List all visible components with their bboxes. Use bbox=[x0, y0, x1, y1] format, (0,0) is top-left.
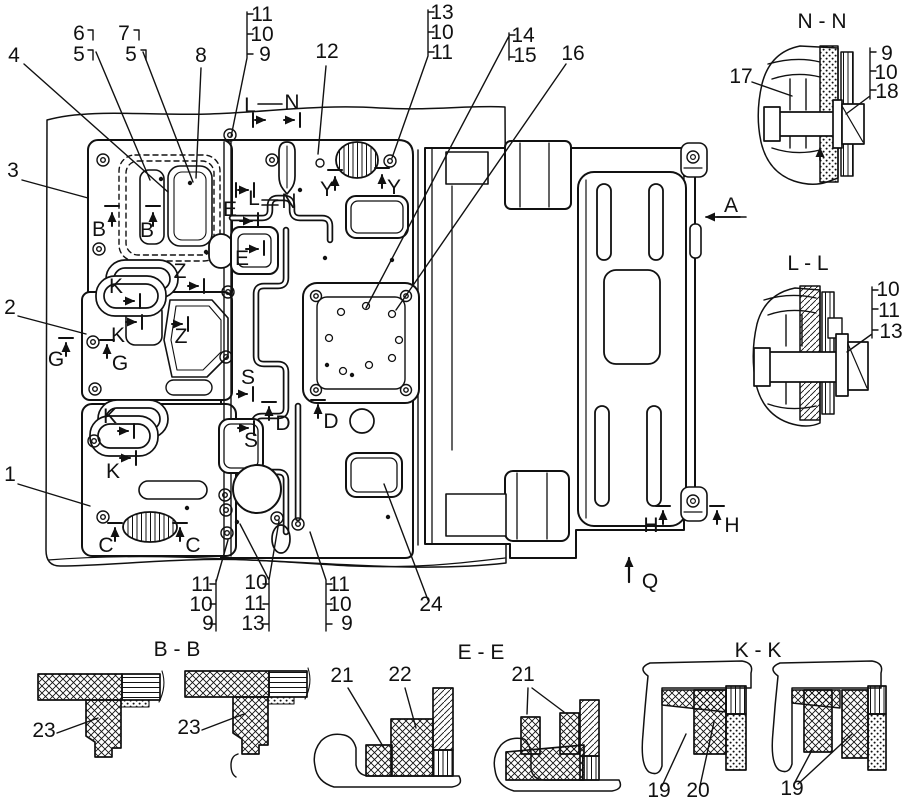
callout-13-bm: 13 bbox=[241, 612, 264, 635]
opening-top-right bbox=[346, 196, 408, 238]
callout-18: 18 bbox=[875, 80, 898, 103]
view-letter-c2: C bbox=[185, 534, 200, 557]
section-title-bb: B - B bbox=[154, 638, 201, 661]
view-letter-z2: Z bbox=[175, 325, 188, 348]
panel-slot bbox=[649, 184, 663, 260]
section-view-ee bbox=[314, 688, 620, 791]
callout-12: 12 bbox=[315, 40, 338, 63]
callout-9-bl: 9 bbox=[202, 612, 214, 635]
body-boss-bottom bbox=[505, 471, 569, 541]
callout-5b: 5 bbox=[125, 43, 137, 66]
panel-slot bbox=[595, 406, 609, 506]
callout-23b: 23 bbox=[177, 716, 200, 739]
big-port bbox=[233, 465, 281, 513]
hatched-port bbox=[123, 512, 177, 542]
view-letter-z1: Z bbox=[174, 260, 187, 283]
view-letter-d1: D bbox=[275, 412, 290, 435]
panel-slot bbox=[647, 406, 661, 506]
callout-17: 17 bbox=[729, 65, 752, 88]
view-letter-d2: D bbox=[323, 410, 338, 433]
view-letter-l2: L bbox=[248, 187, 260, 210]
view-letter-h1: H bbox=[643, 514, 658, 537]
view-letter-n2: N bbox=[281, 190, 296, 213]
view-letter-k4: K bbox=[106, 460, 120, 483]
callout-5a: 5 bbox=[73, 43, 85, 66]
view-letter-s2: S bbox=[244, 429, 258, 452]
callout-9-top: 9 bbox=[259, 43, 271, 66]
view-letter-e1: E bbox=[223, 198, 237, 221]
view-letter-q: Q bbox=[642, 570, 658, 593]
view-letter-y2: Y bbox=[387, 176, 401, 199]
kk-profile-left bbox=[642, 661, 751, 774]
panel-slot bbox=[604, 270, 660, 364]
view-letter-k3: K bbox=[103, 405, 117, 428]
section-title-nn: N - N bbox=[798, 10, 847, 33]
view-letter-k2: K bbox=[111, 324, 125, 347]
callout-10-ll: 10 bbox=[876, 278, 899, 301]
callout-19b: 19 bbox=[780, 777, 803, 800]
view-letter-a: A bbox=[724, 194, 738, 217]
bb-profile-left bbox=[38, 671, 164, 757]
callout-20: 20 bbox=[686, 779, 709, 802]
callout-22: 22 bbox=[388, 663, 411, 686]
callout-11-top2: 11 bbox=[431, 41, 453, 64]
parts-diagram: 4657581110912131011141516321179101810111… bbox=[0, 0, 905, 809]
section-title-ee: E - E bbox=[458, 641, 505, 664]
side-tab bbox=[690, 224, 701, 258]
view-letter-y1: Y bbox=[320, 178, 334, 201]
callout-23a: 23 bbox=[32, 719, 55, 742]
lift-ear-bottom bbox=[681, 487, 707, 521]
callout-15: 15 bbox=[513, 44, 536, 67]
view-letter-c1: C bbox=[98, 534, 113, 557]
section-view-kk bbox=[642, 661, 886, 774]
section-view-nn bbox=[758, 46, 864, 184]
view-letter-h2: H bbox=[724, 514, 739, 537]
callout-21b: 21 bbox=[511, 663, 534, 686]
section-title-ll: L - L bbox=[787, 252, 828, 275]
ee-profile-left bbox=[314, 688, 460, 787]
view-letter-n1: N bbox=[284, 91, 299, 114]
view-letter-e2: E bbox=[235, 247, 249, 270]
view-letter-b1: B bbox=[92, 218, 106, 241]
body-boss-top bbox=[505, 141, 571, 209]
view-letter-b2: B bbox=[140, 219, 154, 242]
engine-body bbox=[425, 141, 707, 558]
callout-11-ll: 11 bbox=[878, 299, 900, 322]
callout-13-ll: 13 bbox=[879, 320, 902, 343]
callout-7: 7 bbox=[118, 22, 130, 45]
lift-ear-top bbox=[681, 143, 707, 177]
view-letter-k1: K bbox=[109, 275, 123, 298]
callout-16: 16 bbox=[561, 42, 584, 65]
view-letter-g1: G bbox=[48, 348, 64, 371]
callout-4: 4 bbox=[8, 44, 20, 67]
diagram-canvas: 4657581110912131011141516321179101810111… bbox=[0, 0, 905, 809]
view-letter-g2: G bbox=[112, 352, 128, 375]
bb-profile-right bbox=[185, 668, 310, 777]
callout-3: 3 bbox=[7, 159, 19, 182]
ee-profile-right bbox=[494, 700, 620, 791]
view-letter-s1: S bbox=[241, 366, 255, 389]
callout-21a: 21 bbox=[330, 664, 353, 687]
callout-6: 6 bbox=[73, 22, 85, 45]
e-cover-ear bbox=[209, 234, 233, 268]
callout-8: 8 bbox=[195, 44, 207, 67]
callout-2: 2 bbox=[4, 296, 16, 319]
panel-slot bbox=[597, 184, 611, 260]
view-letter-l1: L bbox=[244, 94, 256, 117]
section-view-ll bbox=[753, 286, 868, 426]
callout-19a: 19 bbox=[647, 779, 670, 802]
hatched-port-top bbox=[336, 142, 378, 178]
callout-1: 1 bbox=[4, 463, 16, 486]
section-title-kk: K - K bbox=[735, 639, 782, 662]
callout-9-br: 9 bbox=[341, 612, 353, 635]
callout-10-bm: 10 bbox=[244, 571, 267, 594]
callout-24: 24 bbox=[419, 593, 443, 616]
section-view-bb bbox=[38, 668, 310, 777]
